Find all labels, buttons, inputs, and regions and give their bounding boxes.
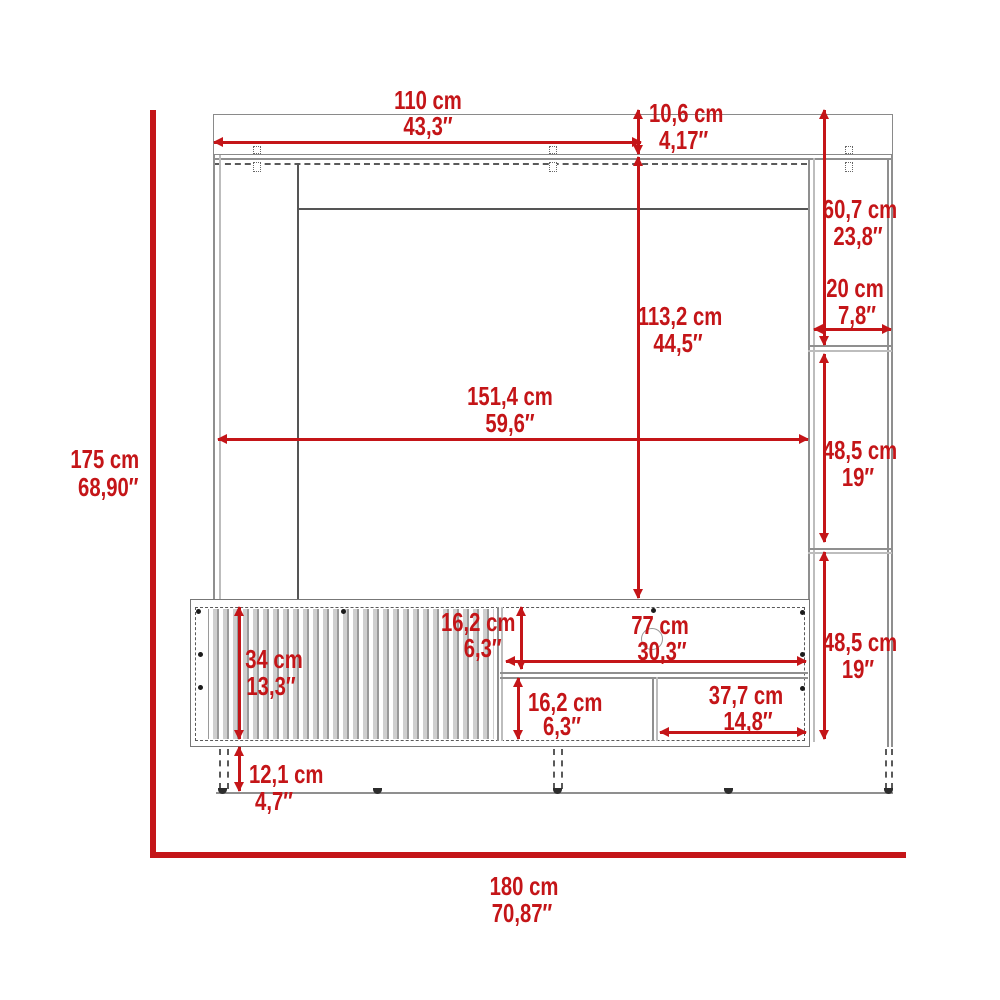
left-panel-inner-edge	[219, 155, 221, 599]
dim-line-lower-opening	[517, 678, 520, 739]
dim-label-side-depth-in: 7,8″	[833, 302, 882, 328]
dim-label-back-panel-in: 44,5″	[646, 330, 709, 356]
left-panel-edge	[213, 155, 215, 599]
dim-label-interior-width-cm: 151,4 cm	[455, 383, 565, 409]
dim-label-top-width-cm: 110 cm	[385, 87, 472, 113]
overall-width-line	[150, 852, 906, 858]
overall-height-label-cm: 175 cm	[51, 446, 139, 472]
dim-label-right-upper-cm: 60,7 cm	[812, 196, 907, 222]
dim-line-back-panel	[637, 157, 640, 598]
dim-label-upper-opening-in: 6,3″	[453, 635, 502, 661]
dim-label-leg-clearance-in: 4,7″	[250, 788, 299, 814]
dim-label-top-width-in: 43,3″	[396, 113, 459, 139]
cam-dot-2	[800, 610, 805, 615]
dim-label-top-panel-in: 4,17″	[659, 127, 722, 153]
bracket-mark-2a	[549, 146, 557, 154]
dim-label-door-height-cm: 34 cm	[237, 646, 311, 672]
cam-dot-8	[341, 609, 346, 614]
top-board-underline	[213, 158, 893, 160]
leg-right-b	[891, 749, 893, 789]
leg-left-a	[219, 749, 221, 789]
dim-line-top-panel	[637, 110, 640, 154]
dimension-diagram: 110 cm 43,3″ 10,6 cm 4,17″ 60,7 cm 23,8″…	[0, 0, 1000, 1000]
bracket-mark-3b	[845, 162, 853, 172]
right-shelf-1b	[808, 350, 892, 352]
dim-label-center-opening-in: 30,3″	[630, 638, 693, 664]
dim-label-lower-compartment-in: 14,8″	[716, 708, 779, 734]
console-divider-a	[652, 677, 654, 741]
console-shelf-b	[500, 677, 808, 679]
dim-label-right-shelf-lower-cm: 48,5 cm	[812, 629, 907, 655]
bracket-mark-2b	[549, 162, 557, 172]
dim-label-right-shelf-upper-cm: 48,5 cm	[812, 437, 907, 463]
dim-line-leg-clearance	[238, 747, 241, 791]
dim-label-upper-opening-cm: 16,2 cm	[420, 609, 515, 635]
dim-label-top-panel-cm: 10,6 cm	[649, 100, 744, 126]
leg-left-b	[227, 749, 229, 789]
dim-label-interior-width-in: 59,6″	[478, 410, 541, 436]
overall-height-label-in: 68,90″	[61, 474, 139, 500]
dim-line-top-width	[214, 141, 641, 144]
dim-label-right-upper-in: 23,8″	[826, 223, 889, 249]
back-panel-left-edge	[297, 163, 299, 599]
dim-label-side-depth-cm: 20 cm	[818, 275, 892, 301]
console-divider-b	[656, 677, 658, 741]
dim-line-interior-width	[218, 438, 808, 441]
bracket-mark-1a	[253, 146, 261, 154]
leg-mid-b	[561, 749, 563, 789]
cam-dot-7	[198, 685, 203, 690]
bracket-mark-3a	[845, 146, 853, 154]
top-board-dashed-line	[215, 163, 807, 165]
leg-mid-a	[553, 749, 555, 789]
leg-right-a	[885, 749, 887, 789]
dim-label-door-height-in: 13,3″	[239, 673, 302, 699]
cam-dot-4	[800, 686, 805, 691]
dim-label-back-panel-cm: 113,2 cm	[626, 303, 734, 329]
back-panel-top-seam	[297, 208, 808, 210]
overall-width-label-cm: 180 cm	[480, 873, 568, 899]
cam-dot-6	[198, 652, 203, 657]
dim-label-lower-compartment-cm: 37,7 cm	[698, 682, 793, 708]
dim-label-center-opening-cm: 77 cm	[623, 612, 697, 638]
dim-label-right-shelf-upper-in: 19″	[837, 464, 878, 490]
right-shelf-2a	[808, 548, 892, 550]
overall-width-label-in: 70,87″	[483, 900, 561, 926]
console-shelf-a	[500, 672, 808, 674]
overall-height-line	[150, 110, 156, 858]
dim-label-lower-opening-in: 6,3″	[543, 713, 592, 739]
dim-label-leg-clearance-cm: 12,1 cm	[249, 761, 344, 787]
dim-label-right-shelf-lower-in: 19″	[837, 656, 878, 682]
bracket-mark-1b	[253, 162, 261, 172]
cam-dot-5	[196, 609, 201, 614]
